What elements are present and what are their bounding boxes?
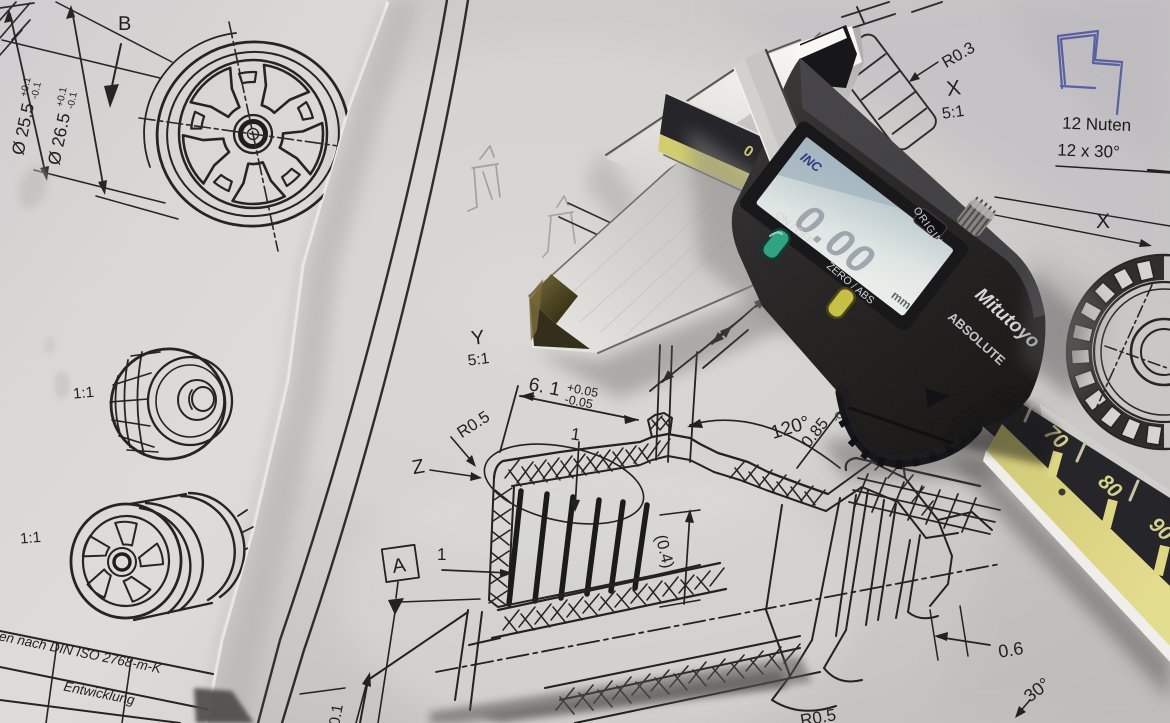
svg-text:B: B — [118, 13, 131, 35]
svg-text:1: 1 — [437, 545, 446, 564]
svg-text:1:1: 1:1 — [19, 529, 41, 548]
svg-text:1:1: 1:1 — [72, 384, 94, 403]
svg-text:Y: Y — [470, 326, 486, 349]
svg-text:0.1: 0.1 — [326, 703, 346, 723]
svg-text:12 Nuten: 12 Nuten — [1062, 114, 1132, 135]
svg-text:0.6: 0.6 — [997, 638, 1025, 662]
svg-text:5:1: 5:1 — [941, 103, 965, 123]
svg-text:12 x 30°: 12 x 30° — [1057, 141, 1120, 162]
svg-text:5:1: 5:1 — [467, 350, 490, 370]
